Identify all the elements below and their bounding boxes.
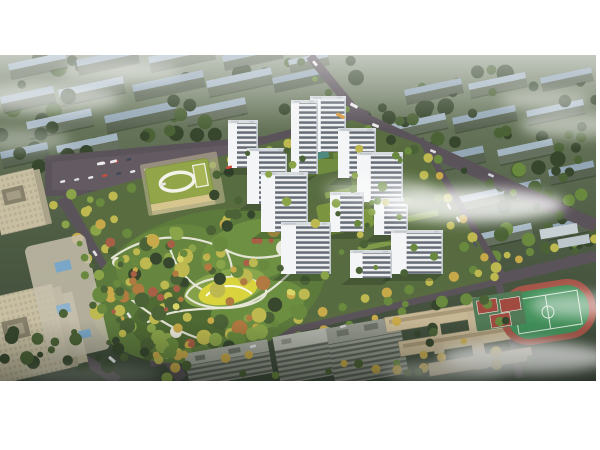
- rendering-page: [0, 0, 600, 450]
- top-haze: [0, 55, 596, 130]
- cloud: [325, 178, 435, 202]
- bottom-shade: [0, 320, 596, 381]
- masterplan-aerial-rendering: [0, 55, 596, 381]
